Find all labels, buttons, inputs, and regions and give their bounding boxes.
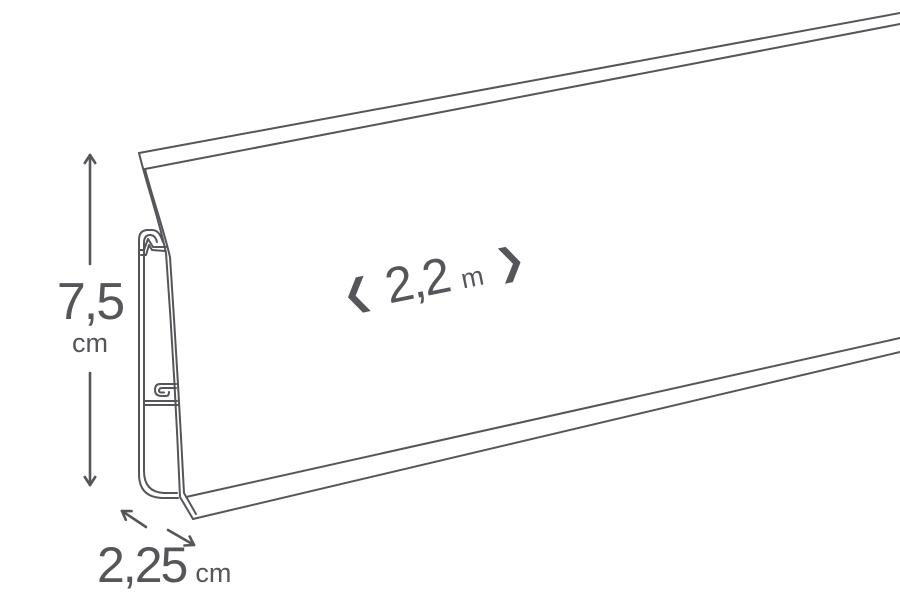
cable-channel-hook-inner-line	[159, 388, 176, 393]
board-bottom-edge-lower-line	[193, 352, 900, 519]
depth-value: 2,25	[97, 540, 186, 590]
board-bottom-edge-upper-line	[186, 338, 900, 497]
height-dimension-label: 7,5 cm	[36, 276, 144, 357]
board-top-edge-outer-line	[139, 13, 900, 153]
board-top-edge-inner-line	[145, 24, 900, 169]
length-unit: m	[459, 262, 486, 293]
height-unit: cm	[36, 330, 144, 357]
depth-unit: cm	[195, 560, 231, 587]
length-value: 2,2	[381, 250, 453, 312]
depth-up-left-arrow-icon	[122, 511, 146, 527]
depth-dimension-label: 2,25 cm	[97, 540, 231, 590]
skirting-board-dimension-diagram: 7,5 cm ❮ 2,2 m ❯ 2,25 cm	[0, 0, 900, 600]
right-chevron-icon: ❯	[492, 242, 529, 283]
board-front-face-outer-line	[139, 153, 193, 519]
left-chevron-icon: ❮	[339, 273, 376, 314]
height-value: 7,5	[36, 276, 144, 328]
